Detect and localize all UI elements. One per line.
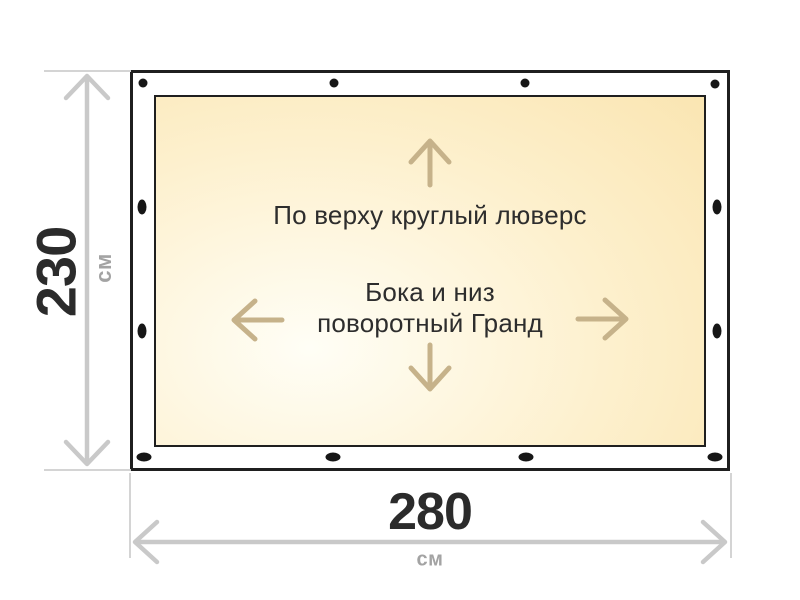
sides-label: Бока и низ поворотный Гранд	[156, 277, 704, 339]
sides-label-line2: поворотный Гранд	[156, 308, 704, 339]
width-arrowhead-left	[135, 522, 157, 562]
width-arrowhead-right	[703, 522, 725, 562]
sides-label-line1: Бока и низ	[156, 277, 704, 308]
top-edge-label: По верху круглый люверс	[156, 200, 704, 231]
width-dimension-value: 280	[388, 482, 472, 542]
tarp-fabric-panel: По верху круглый люверс Бока и низ повор…	[154, 95, 706, 447]
width-dimension-unit: см	[417, 549, 444, 572]
height-dimension-value: 230	[24, 227, 89, 317]
height-dimension-unit: см	[91, 253, 117, 283]
height-arrowhead-up	[66, 76, 108, 98]
height-arrowhead-down	[66, 442, 108, 464]
tarp-dimension-diagram: По верху круглый люверс Бока и низ повор…	[0, 0, 800, 600]
